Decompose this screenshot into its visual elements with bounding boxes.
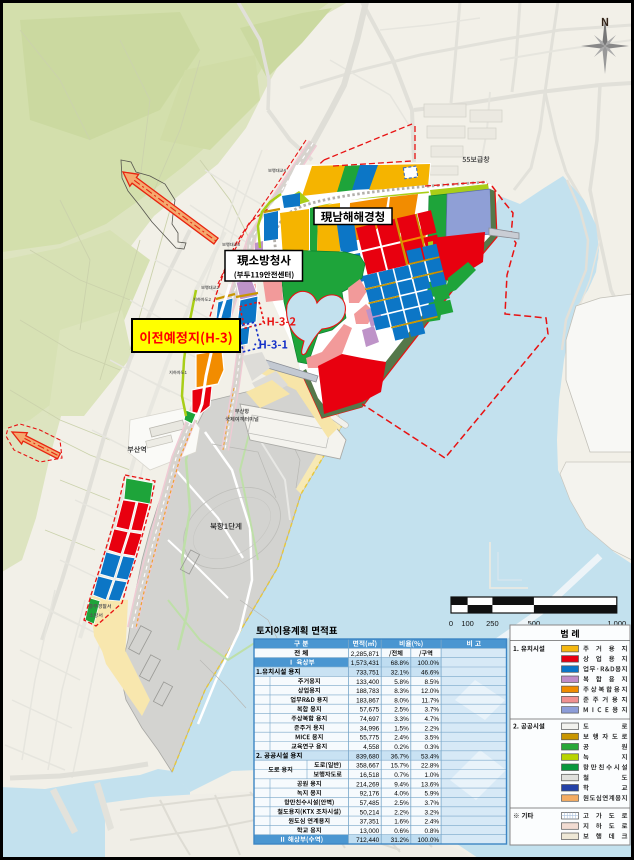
svg-text:1.6%: 1.6%: [394, 819, 409, 826]
svg-text:34,996: 34,996: [360, 725, 380, 732]
svg-text:53.4%: 53.4%: [421, 753, 439, 760]
svg-text:0.6%: 0.6%: [394, 828, 409, 835]
svg-text:0.2%: 0.2%: [394, 744, 409, 751]
svg-text:712,440: 712,440: [356, 837, 380, 844]
svg-text:2.4%: 2.4%: [394, 735, 409, 742]
svg-text:2.4%: 2.4%: [425, 819, 440, 826]
svg-text:8.3%: 8.3%: [394, 688, 409, 695]
svg-text:839,680: 839,680: [356, 753, 380, 760]
svg-text:3.7%: 3.7%: [425, 800, 440, 807]
svg-text:358,667: 358,667: [356, 763, 380, 770]
svg-text:22.8%: 22.8%: [421, 763, 439, 770]
svg-text:15.7%: 15.7%: [391, 763, 409, 770]
svg-text:31.2%: 31.2%: [391, 837, 409, 844]
svg-text:46.6%: 46.6%: [421, 669, 439, 676]
svg-text:733,751: 733,751: [356, 669, 380, 676]
svg-text:100.0%: 100.0%: [417, 837, 439, 844]
svg-text:5.8%: 5.8%: [394, 679, 409, 686]
svg-text:1,573,431: 1,573,431: [351, 660, 380, 667]
svg-text:9.4%: 9.4%: [394, 781, 409, 788]
svg-text:74,697: 74,697: [360, 716, 380, 723]
svg-text:37,351: 37,351: [360, 819, 380, 826]
svg-text:1.0%: 1.0%: [425, 772, 440, 779]
svg-text:183,867: 183,867: [356, 697, 380, 704]
svg-text:50,214: 50,214: [360, 809, 380, 816]
svg-text:3.7%: 3.7%: [425, 707, 440, 714]
svg-text:0.8%: 0.8%: [425, 828, 440, 835]
svg-text:13.6%: 13.6%: [421, 781, 439, 788]
svg-text:3.5%: 3.5%: [425, 735, 440, 742]
svg-text:55,775: 55,775: [360, 735, 380, 742]
svg-text:2.5%: 2.5%: [394, 800, 409, 807]
svg-text:3.3%: 3.3%: [394, 716, 409, 723]
svg-text:68.8%: 68.8%: [391, 660, 409, 667]
svg-text:4.7%: 4.7%: [425, 716, 440, 723]
svg-text:4.0%: 4.0%: [394, 791, 409, 798]
svg-text:57,675: 57,675: [360, 707, 380, 714]
svg-text:92,176: 92,176: [360, 791, 380, 798]
svg-text:1.5%: 1.5%: [394, 725, 409, 732]
svg-text:2.2%: 2.2%: [425, 725, 440, 732]
svg-text:32.1%: 32.1%: [391, 669, 409, 676]
svg-text:2.2%: 2.2%: [394, 809, 409, 816]
svg-text:100.0%: 100.0%: [417, 660, 439, 667]
svg-text:100: 100: [461, 619, 474, 628]
svg-text:188,783: 188,783: [356, 688, 380, 695]
svg-text:2.5%: 2.5%: [394, 707, 409, 714]
svg-text:0.3%: 0.3%: [425, 744, 440, 751]
svg-text:12.0%: 12.0%: [421, 688, 439, 695]
svg-text:8.0%: 8.0%: [394, 697, 409, 704]
svg-text:16,518: 16,518: [360, 772, 380, 779]
svg-text:133,400: 133,400: [356, 679, 380, 686]
svg-text:214,269: 214,269: [356, 781, 380, 788]
svg-text:8.5%: 8.5%: [425, 679, 440, 686]
svg-text:0.7%: 0.7%: [394, 772, 409, 779]
svg-text:4,558: 4,558: [363, 744, 379, 751]
svg-text:0: 0: [449, 619, 453, 628]
svg-text:5.9%: 5.9%: [425, 791, 440, 798]
svg-text:36.7%: 36.7%: [391, 753, 409, 760]
svg-text:2,285,871: 2,285,871: [351, 651, 380, 658]
svg-text:13,000: 13,000: [360, 828, 380, 835]
svg-text:11.7%: 11.7%: [421, 697, 439, 704]
svg-text:250: 250: [486, 619, 499, 628]
svg-text:3.2%: 3.2%: [425, 809, 440, 816]
svg-text:57,485: 57,485: [360, 800, 380, 807]
